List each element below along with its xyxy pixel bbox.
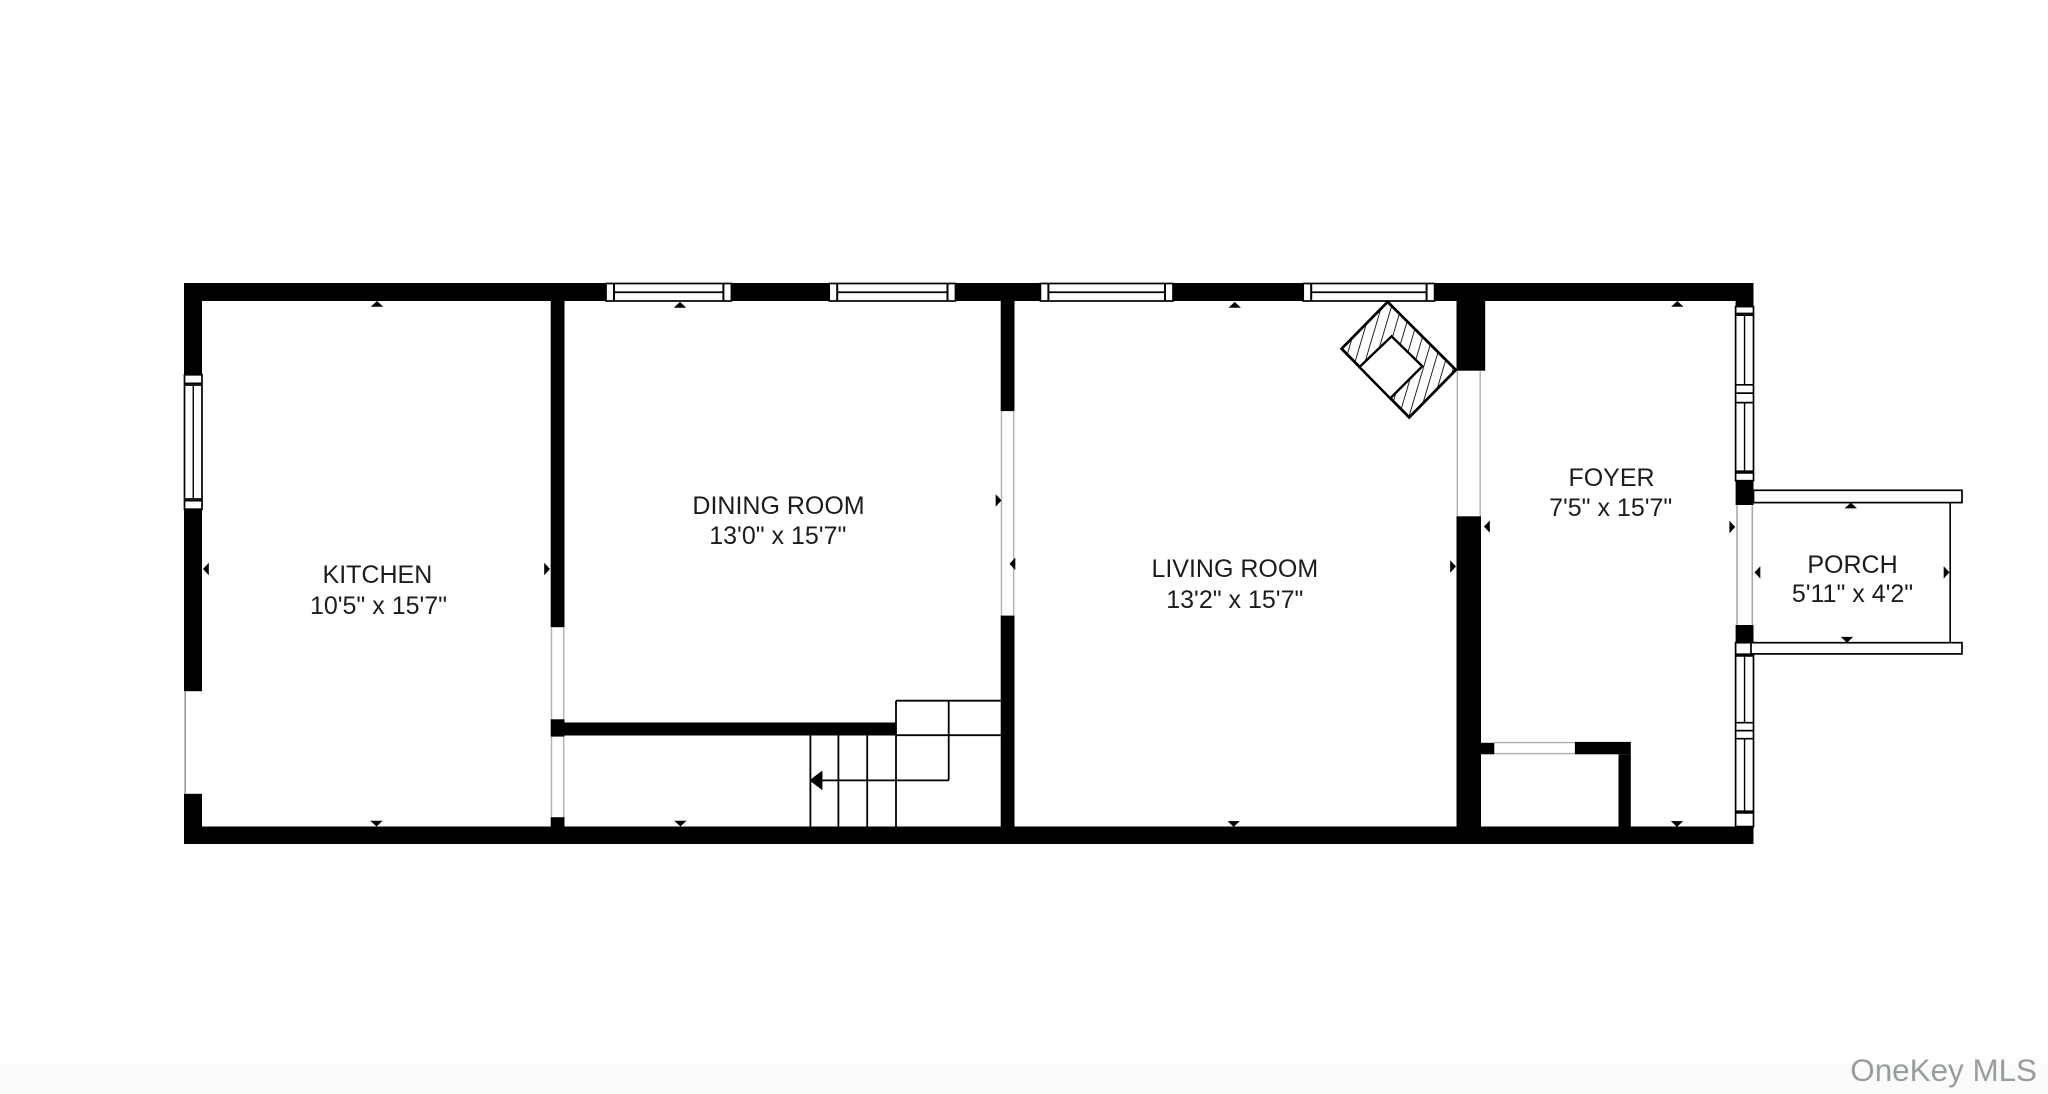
svg-text:DINING ROOM: DINING ROOM: [692, 492, 864, 520]
svg-text:13'2" x 15'7": 13'2" x 15'7": [1166, 586, 1303, 614]
svg-text:OneKey MLS: OneKey MLS: [1850, 1053, 2037, 1088]
svg-text:7'5" x 15'7": 7'5" x 15'7": [1549, 494, 1672, 522]
svg-text:PORCH: PORCH: [1807, 551, 1897, 579]
svg-text:LIVING ROOM: LIVING ROOM: [1151, 555, 1318, 583]
svg-text:5'11" x 4'2": 5'11" x 4'2": [1792, 580, 1913, 608]
svg-text:KITCHEN: KITCHEN: [323, 561, 433, 589]
svg-text:10'5" x 15'7": 10'5" x 15'7": [310, 592, 447, 620]
svg-text:13'0" x 15'7": 13'0" x 15'7": [709, 522, 846, 550]
svg-text:FOYER: FOYER: [1568, 464, 1654, 492]
